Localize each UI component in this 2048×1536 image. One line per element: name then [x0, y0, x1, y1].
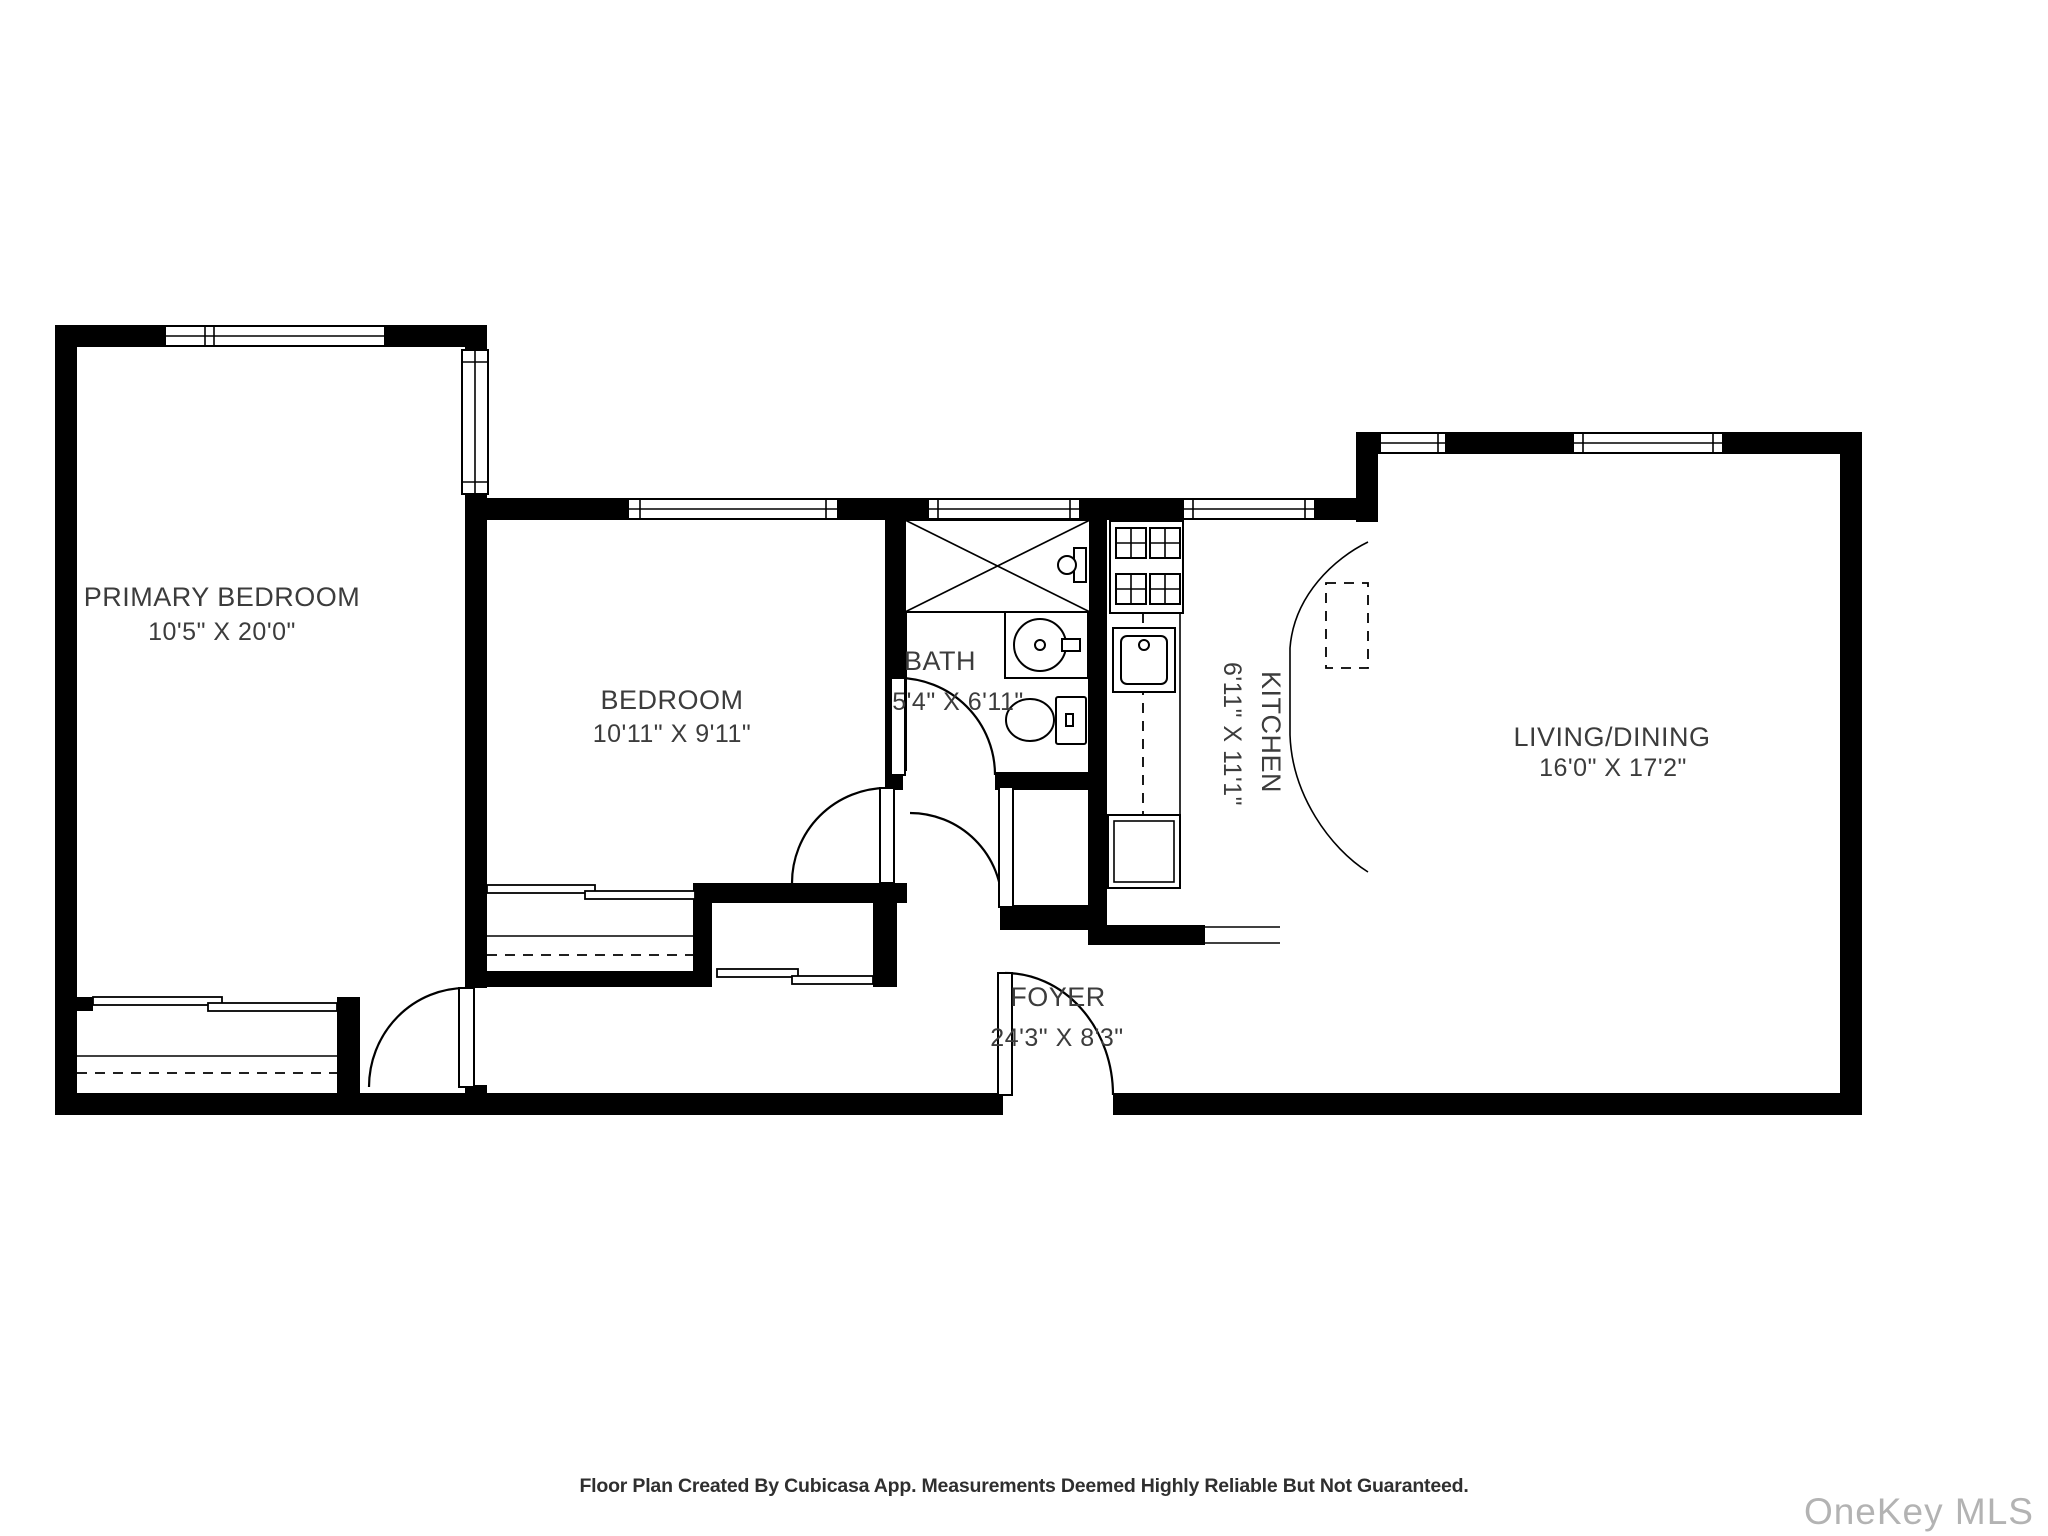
disclaimer-text: Floor Plan Created By Cubicasa App. Meas… — [579, 1475, 1468, 1497]
kitchen-sink-icon — [1113, 628, 1175, 692]
kitchen-opening — [1205, 925, 1280, 945]
room-label-primary-bedroom: PRIMARY BEDROOM 10'5" X 20'0" — [84, 582, 361, 646]
bathtub-icon — [905, 520, 1090, 612]
floorplan-drawing: PRIMARY BEDROOM 10'5" X 20'0" BEDROOM 10… — [0, 0, 2048, 1536]
primary-bedroom-door-icon — [369, 988, 474, 1087]
windows — [165, 326, 1723, 519]
window-icon — [628, 499, 838, 519]
room-name: LIVING/DINING — [1513, 722, 1710, 752]
room-name: BATH — [904, 646, 976, 676]
room-label-kitchen: KITCHEN 6'11" X 11'1" — [1218, 662, 1286, 806]
sliding-door-icon — [717, 969, 873, 984]
room-dims: 24'3" X 8'3" — [990, 1024, 1123, 1052]
watermark: OneKey MLS — [1804, 1491, 2034, 1532]
room-name: KITCHEN — [1256, 671, 1286, 793]
room-label-bedroom: BEDROOM 10'11" X 9'11" — [593, 685, 751, 748]
window-icon — [462, 350, 488, 494]
room-dims: 16'0" X 17'2" — [1539, 754, 1687, 782]
primary-closet — [77, 997, 337, 1073]
room-dims: 6'11" X 11'1" — [1218, 662, 1246, 806]
stove-icon — [1110, 521, 1183, 613]
bedroom-door-icon — [792, 788, 894, 883]
window-icon — [928, 499, 1080, 519]
window-icon — [1380, 433, 1446, 453]
kitchen-peninsula-counter — [1290, 542, 1368, 872]
room-dims: 5'4" X 6'11" — [892, 688, 1024, 716]
foyer-closet — [717, 969, 873, 984]
room-dims: 10'11" X 9'11" — [593, 720, 751, 748]
room-label-living-dining: LIVING/DINING 16'0" X 17'2" — [1513, 722, 1710, 782]
refrigerator-icon — [1108, 815, 1180, 888]
room-dims: 10'5" X 20'0" — [148, 618, 296, 646]
hall-door-icon — [910, 787, 1013, 907]
bathroom-sink-icon — [1005, 612, 1088, 678]
room-name: BEDROOM — [600, 685, 743, 715]
room-name: PRIMARY BEDROOM — [84, 582, 361, 612]
window-icon — [1183, 499, 1315, 519]
room-name: FOYER — [1010, 982, 1106, 1012]
sliding-door-icon — [487, 885, 695, 899]
bedroom-closet — [487, 885, 695, 955]
sliding-door-icon — [93, 997, 337, 1011]
window-icon — [165, 326, 385, 346]
floorplan-page: PRIMARY BEDROOM 10'5" X 20'0" BEDROOM 10… — [0, 0, 2048, 1536]
window-icon — [1573, 433, 1723, 453]
